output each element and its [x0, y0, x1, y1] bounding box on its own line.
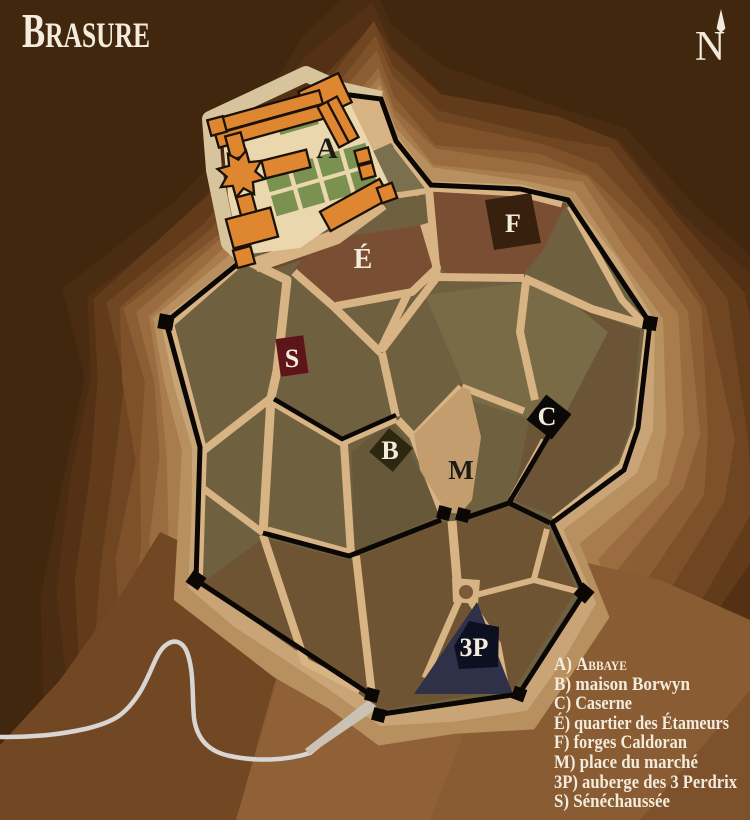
svg-text:É) quartier des Étameurs: É) quartier des Étameurs: [554, 712, 729, 734]
svg-text:C: C: [538, 402, 557, 431]
svg-text:F: F: [505, 209, 521, 238]
svg-text:A) Abbaye: A) Abbaye: [554, 654, 627, 675]
svg-text:M) place du marché: M) place du marché: [554, 752, 698, 773]
svg-text:B) maison Borwyn: B) maison Borwyn: [554, 674, 690, 695]
svg-text:3P) auberge des 3 Perdrix: 3P) auberge des 3 Perdrix: [554, 772, 737, 793]
svg-text:É: É: [354, 244, 373, 275]
svg-text:B: B: [381, 436, 398, 465]
svg-text:S) Sénéchaussée: S) Sénéchaussée: [554, 791, 670, 812]
svg-text:3P: 3P: [460, 633, 489, 662]
svg-text:C) Caserne: C) Caserne: [554, 693, 632, 714]
svg-text:N: N: [695, 24, 725, 70]
svg-text:A: A: [316, 132, 338, 165]
svg-text:F) forges Caldoran: F) forges Caldoran: [554, 732, 687, 753]
svg-text:M: M: [448, 455, 473, 485]
svg-text:S: S: [285, 344, 299, 373]
